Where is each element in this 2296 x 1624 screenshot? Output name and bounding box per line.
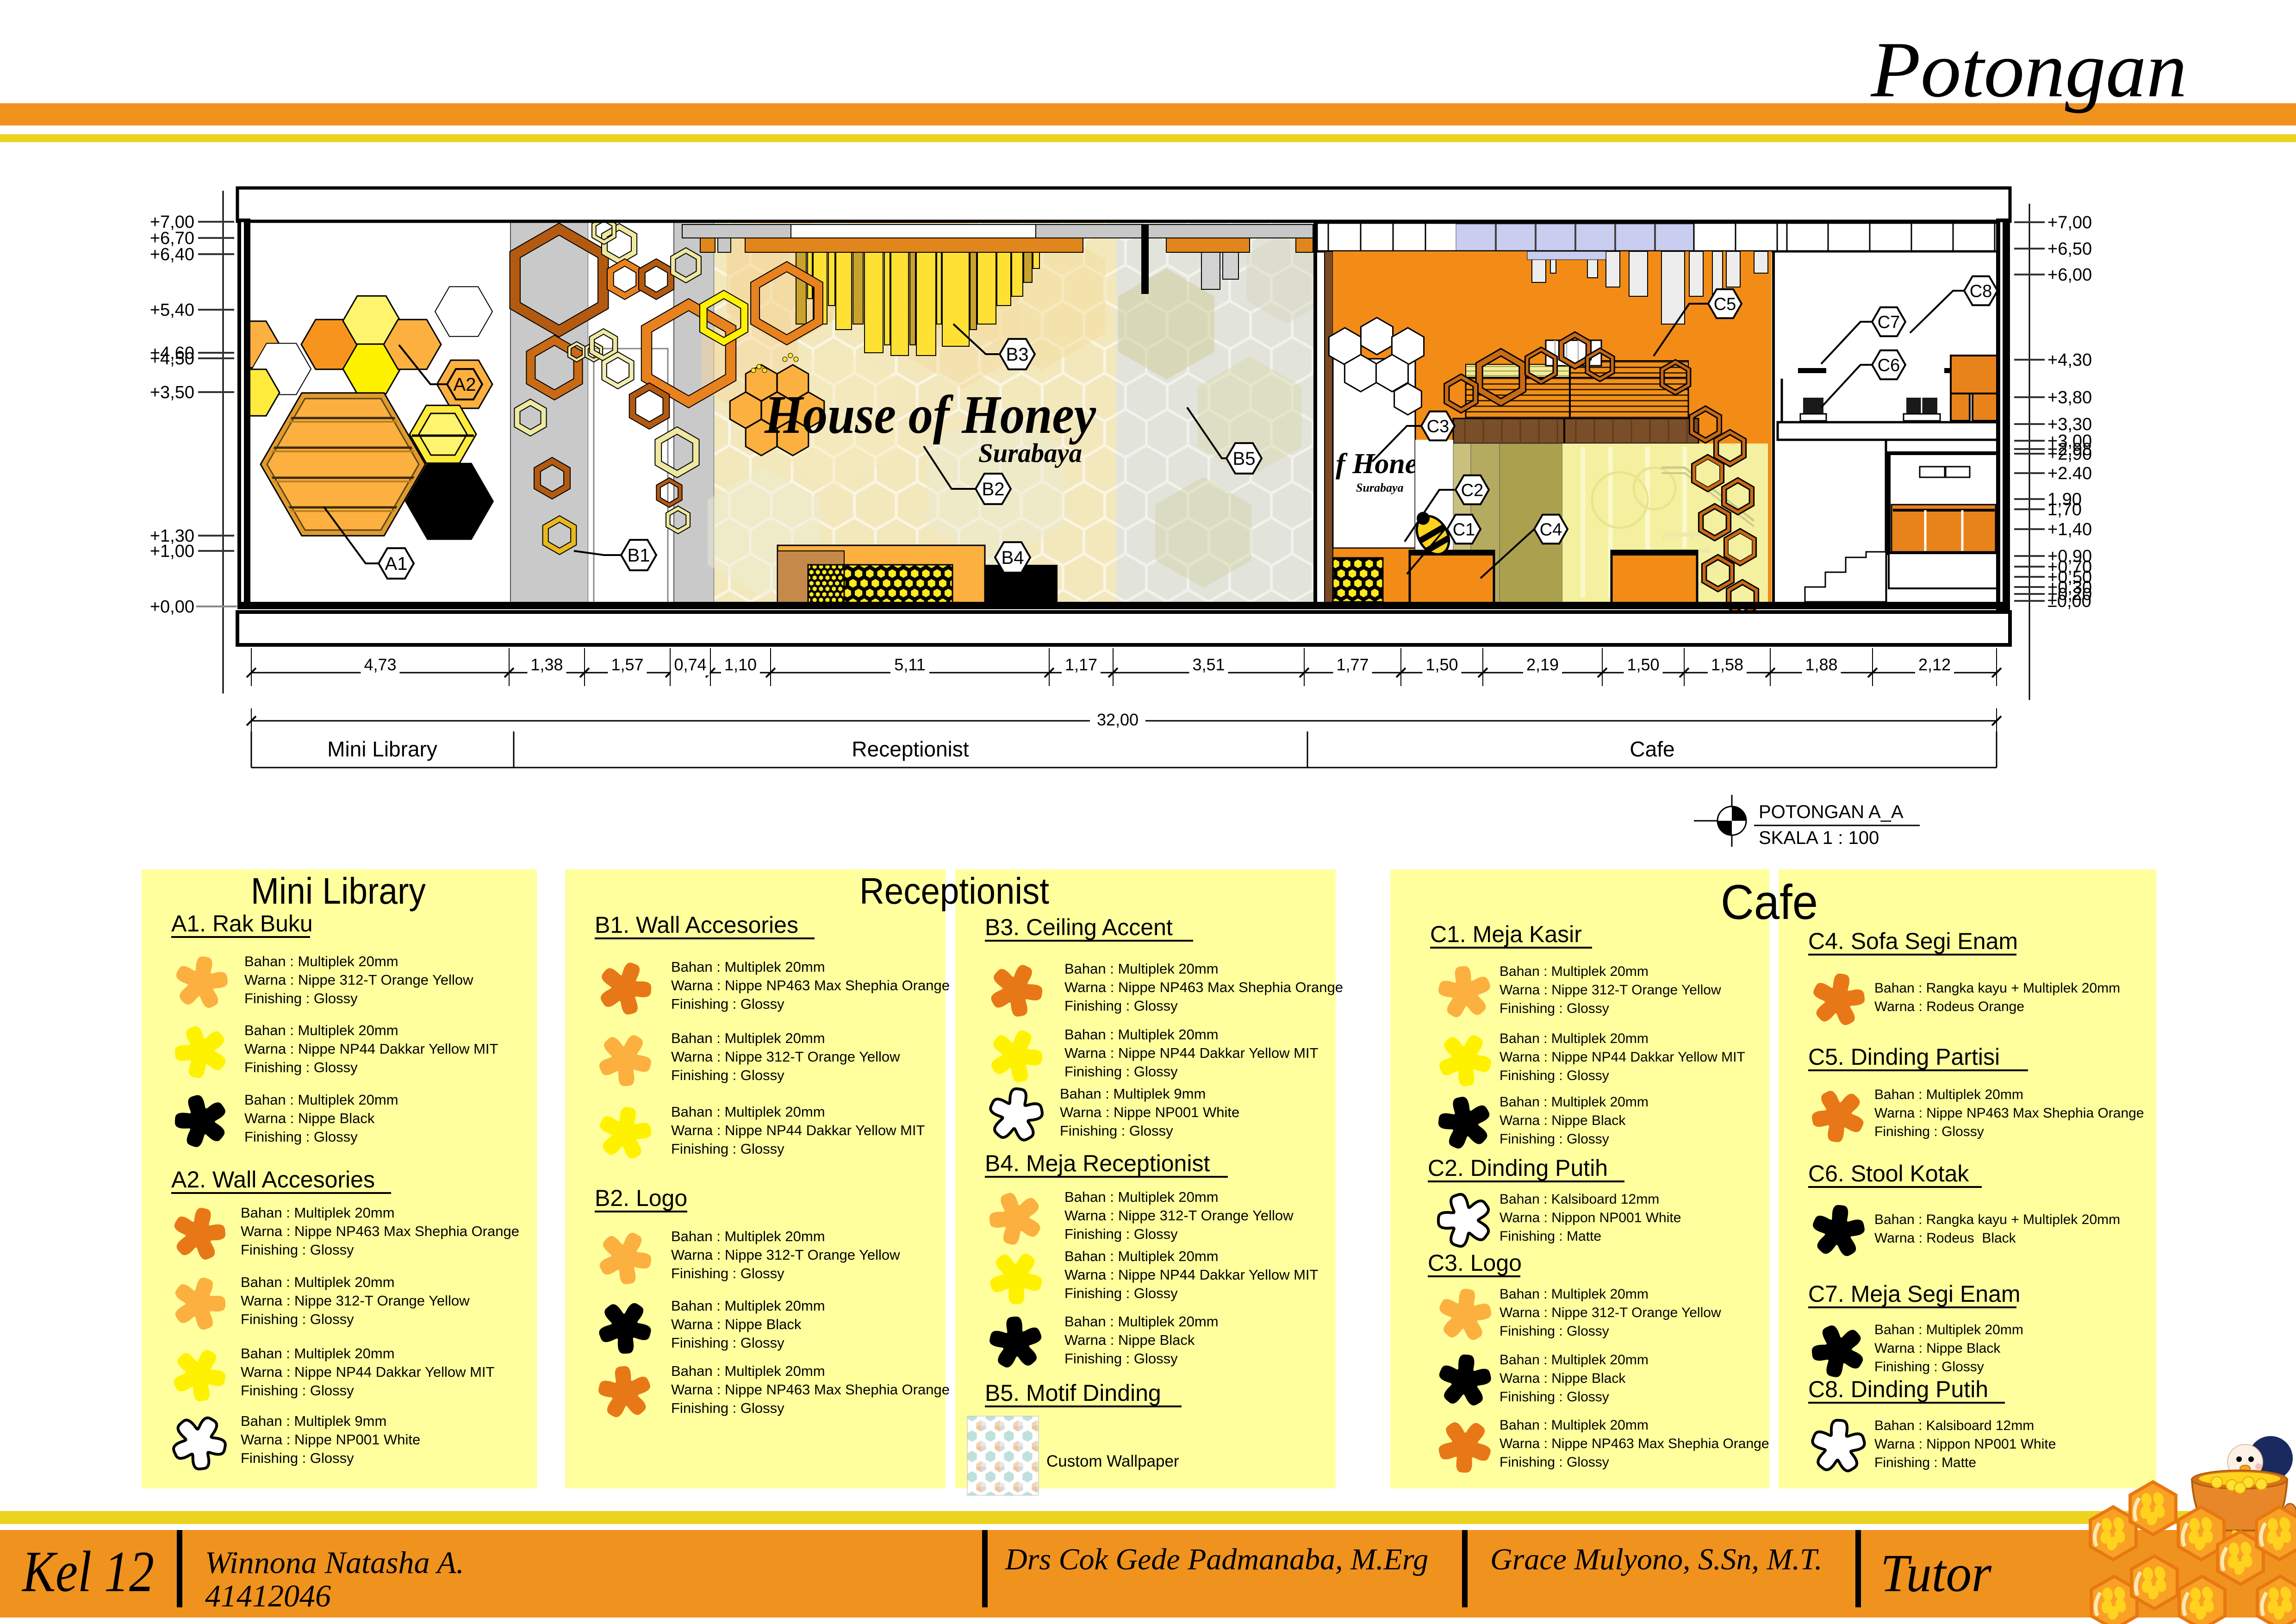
svg-text:Bahan : Multiplek 20mm: Bahan : Multiplek 20mm (244, 953, 398, 969)
svg-text:Warna : Nippe NP463 Max Shephi: Warna : Nippe NP463 Max Shephia Orange (241, 1223, 519, 1239)
svg-text:Warna : Nippe NP001 White: Warna : Nippe NP001 White (241, 1431, 420, 1448)
svg-text:Mini Library: Mini Library (327, 737, 437, 761)
svg-text:Warna : Nippe 312-T Orange Yel: Warna : Nippe 312-T Orange Yellow (671, 1049, 900, 1065)
svg-text:Warna : Nippe NP463 Max Shephi: Warna : Nippe NP463 Max Shephia Orange (671, 1381, 950, 1398)
svg-text:Finishing : Glossy: Finishing : Glossy (1500, 1389, 1609, 1405)
svg-text:±0,00: ±0,00 (2047, 592, 2091, 611)
svg-text:Warna : Rodeus Orange: Warna : Rodeus Orange (1874, 999, 2024, 1014)
svg-text:Warna : Rodeus Black: Warna : Rodeus Black (1874, 1230, 2016, 1246)
svg-text:Warna : Nippe NP463 Max Shephi: Warna : Nippe NP463 Max Shephia Orange (1500, 1436, 1769, 1451)
svg-text:Warna : Nippe Black: Warna : Nippe Black (244, 1110, 375, 1126)
svg-text:1,88: 1,88 (1805, 655, 1837, 674)
svg-text:Bahan : Multiplek 20mm: Bahan : Multiplek 20mm (671, 959, 825, 975)
svg-text:Finishing : Glossy: Finishing : Glossy (1500, 1324, 1609, 1339)
svg-text:A1. Rak Buku: A1. Rak Buku (171, 911, 313, 937)
svg-text:Bahan : Kalsiboard 12mm: Bahan : Kalsiboard 12mm (1874, 1418, 2034, 1433)
svg-text:B1: B1 (628, 545, 650, 566)
svg-text:Bahan : Multiplek 20mm: Bahan : Multiplek 20mm (241, 1274, 395, 1290)
svg-text:Bahan : Multiplek 20mm: Bahan : Multiplek 20mm (1064, 1026, 1219, 1043)
svg-text:Finishing : Glossy: Finishing : Glossy (1500, 1131, 1609, 1147)
svg-text:Bahan : Multiplek 20mm: Bahan : Multiplek 20mm (1500, 1352, 1649, 1368)
svg-text:Warna : Nippe 312-T Orange Yel: Warna : Nippe 312-T Orange Yellow (1500, 982, 1721, 998)
svg-text:C3: C3 (1427, 417, 1450, 436)
svg-text:1,70: 1,70 (2047, 500, 2082, 519)
svg-text:Warna : Nippe Black: Warna : Nippe Black (1500, 1371, 1626, 1386)
svg-text:House of Honey: House of Honey (764, 384, 1096, 445)
svg-text:0,74: 0,74 (674, 655, 706, 674)
svg-text:Mini Library: Mini Library (251, 870, 426, 912)
svg-text:Cafe: Cafe (1721, 875, 1818, 930)
svg-text:Bahan : Multiplek 20mm: Bahan : Multiplek 20mm (1064, 1189, 1219, 1205)
svg-text:Receptionist: Receptionist (859, 870, 1049, 912)
svg-text:1,38: 1,38 (530, 655, 563, 674)
svg-text:C7. Meja Segi Enam: C7. Meja Segi Enam (1808, 1281, 2021, 1307)
svg-text:Bahan : Multiplek 20mm: Bahan : Multiplek 20mm (1064, 961, 1219, 977)
svg-text:Bahan : Multiplek 20mm: Bahan : Multiplek 20mm (671, 1030, 825, 1046)
svg-text:Finishing : Glossy: Finishing : Glossy (1064, 1350, 1178, 1367)
svg-text:+1,00: +1,00 (150, 542, 194, 561)
svg-text:C4. Sofa Segi Enam: C4. Sofa Segi Enam (1808, 928, 2018, 954)
svg-text:+6,40: +6,40 (150, 245, 194, 264)
svg-text:Bahan : Multiplek 20mm: Bahan : Multiplek 20mm (1500, 1418, 1649, 1433)
svg-text:+3,80: +3,80 (2047, 388, 2092, 407)
svg-text:Warna : Nippe NP463 Max Shephi: Warna : Nippe NP463 Max Shephia Orange (1064, 979, 1343, 995)
svg-text:Finishing : Glossy: Finishing : Glossy (1500, 1455, 1609, 1470)
svg-text:Finishing : Glossy: Finishing : Glossy (241, 1242, 354, 1258)
svg-text:Bahan : Multiplek 20mm: Bahan : Multiplek 20mm (671, 1363, 825, 1379)
svg-text:Finishing : Glossy: Finishing : Glossy (671, 1141, 784, 1157)
svg-text:A2. Wall Accesories: A2. Wall Accesories (171, 1167, 375, 1193)
svg-text:Tutor: Tutor (1880, 1544, 1992, 1603)
svg-text:C8. Dinding Putih: C8. Dinding Putih (1808, 1376, 1988, 1402)
svg-text:+1,40: +1,40 (2047, 520, 2092, 539)
svg-text:Finishing : Glossy: Finishing : Glossy (671, 1400, 784, 1416)
svg-text:1,50: 1,50 (1627, 655, 1659, 674)
svg-text:Bahan : Multiplek 20mm: Bahan : Multiplek 20mm (1874, 1322, 2023, 1337)
svg-text:Finishing : Glossy: Finishing : Glossy (1064, 998, 1178, 1014)
svg-text:Warna : Nippe NP463 Max Shephi: Warna : Nippe NP463 Max Shephia Orange (1874, 1106, 2144, 1121)
svg-text:Bahan : Multiplek 20mm: Bahan : Multiplek 20mm (1500, 1287, 1649, 1302)
svg-text:Drs Cok Gede Padmanaba, M.Erg: Drs Cok Gede Padmanaba, M.Erg (1005, 1543, 1428, 1576)
svg-text:Finishing : Glossy: Finishing : Glossy (1874, 1359, 1984, 1374)
svg-text:Grace Mulyono, S.Sn, M.T.: Grace Mulyono, S.Sn, M.T. (1490, 1543, 1822, 1576)
svg-text:Custom Wallpaper: Custom Wallpaper (1046, 1452, 1179, 1470)
svg-text:A2: A2 (454, 375, 476, 395)
svg-text:B1. Wall Accesories: B1. Wall Accesories (595, 912, 798, 938)
svg-text:Cafe: Cafe (1630, 737, 1674, 761)
svg-text:Bahan : Multiplek 20mm: Bahan : Multiplek 20mm (1500, 1031, 1649, 1046)
svg-text:Finishing : Glossy: Finishing : Glossy (1064, 1226, 1178, 1242)
svg-text:+6,00: +6,00 (2047, 265, 2092, 285)
svg-text:Warna : Nippe 312-T Orange Yel: Warna : Nippe 312-T Orange Yellow (1500, 1305, 1721, 1320)
svg-text:POTONGAN A_A: POTONGAN A_A (1759, 802, 1904, 822)
svg-text:C3. Logo: C3. Logo (1428, 1250, 1522, 1276)
svg-text:Finishing : Glossy: Finishing : Glossy (671, 1265, 784, 1281)
svg-text:Bahan : Multiplek 9mm: Bahan : Multiplek 9mm (241, 1413, 386, 1429)
svg-text:C7: C7 (1878, 312, 1900, 332)
svg-text:2,12: 2,12 (1918, 655, 1951, 674)
svg-text:Finishing : Glossy: Finishing : Glossy (1064, 1285, 1178, 1301)
svg-text:Warna : Nippe NP44 Dakkar Yell: Warna : Nippe NP44 Dakkar Yellow MIT (1064, 1267, 1319, 1283)
svg-text:Bahan : Multiplek 20mm: Bahan : Multiplek 20mm (1500, 1094, 1649, 1110)
svg-text:Finishing : Glossy: Finishing : Glossy (244, 1059, 358, 1075)
svg-text:41412046: 41412046 (205, 1578, 331, 1613)
svg-text:+3,50: +3,50 (150, 383, 194, 402)
svg-text:Finishing : Glossy: Finishing : Glossy (1500, 1001, 1609, 1016)
svg-text:Finishing : Glossy: Finishing : Glossy (1500, 1068, 1609, 1083)
svg-text:+4,50: +4,50 (150, 349, 194, 369)
svg-text:Bahan : Multiplek 20mm: Bahan : Multiplek 20mm (1064, 1313, 1219, 1330)
svg-text:Warna : Nippe 312-T Orange Yel: Warna : Nippe 312-T Orange Yellow (1064, 1207, 1294, 1224)
svg-text:+7,00: +7,00 (2047, 213, 2092, 232)
svg-text:B5. Motif Dinding: B5. Motif Dinding (985, 1380, 1161, 1406)
svg-text:+4,30: +4,30 (2047, 350, 2092, 370)
svg-text:Warna : Nippe Black: Warna : Nippe Black (1874, 1341, 2001, 1356)
svg-text:5,11: 5,11 (894, 655, 925, 674)
svg-text:C5: C5 (1714, 294, 1736, 314)
svg-text:C2. Dinding Putih: C2. Dinding Putih (1428, 1155, 1608, 1181)
svg-text:Finishing : Matte: Finishing : Matte (1500, 1229, 1601, 1244)
svg-text:+2.40: +2.40 (2047, 464, 2092, 483)
svg-text:Warna : Nippe NP44 Dakkar Yell: Warna : Nippe NP44 Dakkar Yellow MIT (671, 1122, 925, 1138)
svg-text:Finishing : Matte: Finishing : Matte (1874, 1455, 1976, 1470)
svg-text:Finishing : Glossy: Finishing : Glossy (244, 990, 358, 1006)
svg-text:C6: C6 (1878, 356, 1900, 375)
svg-text:C2: C2 (1461, 481, 1484, 500)
svg-text:Warna : Nippe Black: Warna : Nippe Black (671, 1316, 802, 1332)
svg-text:Warna : Nippe 312-T Orange Yel: Warna : Nippe 312-T Orange Yellow (671, 1247, 900, 1263)
svg-text:Bahan : Multiplek 20mm: Bahan : Multiplek 20mm (244, 1022, 398, 1038)
svg-text:3,51: 3,51 (1192, 655, 1225, 674)
svg-text:C6. Stool Kotak: C6. Stool Kotak (1808, 1161, 1969, 1187)
svg-text:Bahan : Multiplek 20mm: Bahan : Multiplek 20mm (671, 1228, 825, 1244)
svg-text:Warna : Nippe NP463 Max Shephi: Warna : Nippe NP463 Max Shephia Orange (671, 977, 950, 993)
svg-text:Receptionist: Receptionist (852, 737, 969, 761)
svg-text:B5: B5 (1233, 449, 1256, 469)
svg-text:Finishing : Glossy: Finishing : Glossy (1064, 1063, 1178, 1080)
svg-text:Warna : Nippe NP44 Dakkar Yell: Warna : Nippe NP44 Dakkar Yellow MIT (1500, 1049, 1745, 1065)
svg-text:Bahan : Multiplek 20mm: Bahan : Multiplek 20mm (1500, 964, 1649, 979)
svg-text:Winnona Natasha A.: Winnona Natasha A. (205, 1545, 464, 1580)
svg-text:C1. Meja Kasir: C1. Meja Kasir (1430, 921, 1582, 947)
svg-text:Surabaya: Surabaya (978, 438, 1082, 468)
svg-text:+5,40: +5,40 (150, 300, 194, 320)
svg-text:Finishing : Glossy: Finishing : Glossy (1874, 1124, 1984, 1139)
svg-text:Finishing : Glossy: Finishing : Glossy (671, 996, 784, 1012)
svg-text:2,19: 2,19 (1526, 655, 1559, 674)
svg-text:Finishing : Glossy: Finishing : Glossy (671, 1067, 784, 1083)
svg-text:Bahan : Rangka kayu + Multiple: Bahan : Rangka kayu + Multiplek 20mm (1874, 1212, 2120, 1227)
svg-text:Kel 12: Kel 12 (21, 1540, 154, 1604)
svg-text:A1: A1 (385, 554, 408, 574)
svg-text:Warna : Nippe 312-T Orange Yel: Warna : Nippe 312-T Orange Yellow (244, 972, 473, 988)
svg-text:Bahan : Multiplek 20mm: Bahan : Multiplek 20mm (244, 1092, 398, 1108)
svg-text:Warna : Nippe NP44 Dakkar Yell: Warna : Nippe NP44 Dakkar Yellow MIT (241, 1364, 495, 1380)
svg-text:Finishing : Glossy: Finishing : Glossy (244, 1129, 358, 1145)
svg-text:1,17: 1,17 (1065, 655, 1097, 674)
svg-text:Finishing : Glossy: Finishing : Glossy (1060, 1123, 1173, 1139)
svg-text:+2,90: +2,90 (2047, 444, 2092, 464)
svg-text:Bahan : Multiplek 20mm: Bahan : Multiplek 20mm (671, 1104, 825, 1120)
svg-text:1,77: 1,77 (1336, 655, 1369, 674)
svg-text:Bahan : Multiplek 20mm: Bahan : Multiplek 20mm (1064, 1248, 1219, 1264)
svg-text:Warna : Nippon NP001 White: Warna : Nippon NP001 White (1874, 1437, 2056, 1452)
svg-text:1,10: 1,10 (724, 655, 757, 674)
svg-text:1,58: 1,58 (1711, 655, 1743, 674)
svg-text:Warna : Nippe NP44 Dakkar Yell: Warna : Nippe NP44 Dakkar Yellow MIT (244, 1041, 498, 1057)
svg-text:SKALA 1 : 100: SKALA 1 : 100 (1759, 828, 1879, 848)
svg-text:Bahan : Multiplek 20mm: Bahan : Multiplek 20mm (241, 1205, 395, 1221)
svg-text:B4: B4 (1002, 548, 1024, 568)
svg-text:B2: B2 (982, 479, 1005, 500)
svg-text:Warna : Nippe 312-T Orange Yel: Warna : Nippe 312-T Orange Yellow (241, 1293, 470, 1309)
svg-text:Warna : Nippe Black: Warna : Nippe Black (1064, 1332, 1195, 1348)
svg-text:Warna : Nippe NP001 White: Warna : Nippe NP001 White (1060, 1104, 1239, 1120)
svg-text:Surabaya: Surabaya (1356, 481, 1404, 494)
svg-text:Finishing : Glossy: Finishing : Glossy (241, 1450, 354, 1466)
svg-text:B4. Meja Receptionist: B4. Meja Receptionist (985, 1150, 1210, 1176)
svg-text:Finishing : Glossy: Finishing : Glossy (241, 1382, 354, 1399)
svg-text:+0,00: +0,00 (150, 597, 194, 617)
svg-text:C4: C4 (1540, 520, 1562, 539)
svg-text:B2. Logo: B2. Logo (595, 1185, 687, 1211)
svg-text:32,00: 32,00 (1097, 710, 1139, 729)
svg-text:Warna : Nippon NP001 White: Warna : Nippon NP001 White (1500, 1210, 1681, 1225)
svg-text:Warna : Nippe Black: Warna : Nippe Black (1500, 1113, 1626, 1128)
svg-text:Bahan : Multiplek 20mm: Bahan : Multiplek 20mm (1874, 1087, 2023, 1102)
svg-text:C1: C1 (1453, 520, 1475, 539)
svg-text:Bahan : Rangka kayu + Multiple: Bahan : Rangka kayu + Multiplek 20mm (1874, 981, 2120, 996)
svg-text:Finishing : Glossy: Finishing : Glossy (241, 1311, 354, 1327)
svg-text:B3: B3 (1006, 344, 1029, 365)
svg-text:Bahan : Multiplek 20mm: Bahan : Multiplek 20mm (671, 1298, 825, 1314)
svg-text:B3. Ceiling Accent: B3. Ceiling Accent (985, 914, 1173, 940)
svg-text:4,73: 4,73 (364, 655, 396, 674)
svg-text:Warna : Nippe NP44 Dakkar Yell: Warna : Nippe NP44 Dakkar Yellow MIT (1064, 1045, 1319, 1061)
svg-text:Bahan : Multiplek 20mm: Bahan : Multiplek 20mm (241, 1345, 395, 1362)
svg-text:Bahan : Multiplek 9mm: Bahan : Multiplek 9mm (1060, 1086, 1206, 1102)
svg-text:Potongan: Potongan (1870, 26, 2187, 114)
svg-text:1,57: 1,57 (611, 655, 643, 674)
svg-text:Bahan : Kalsiboard 12mm: Bahan : Kalsiboard 12mm (1500, 1192, 1659, 1207)
svg-text:+6,50: +6,50 (2047, 239, 2092, 259)
svg-text:C8: C8 (1970, 281, 1992, 301)
svg-text:C5. Dinding Partisi: C5. Dinding Partisi (1808, 1044, 2000, 1070)
svg-text:1,50: 1,50 (1425, 655, 1458, 674)
svg-text:Finishing : Glossy: Finishing : Glossy (671, 1335, 784, 1351)
